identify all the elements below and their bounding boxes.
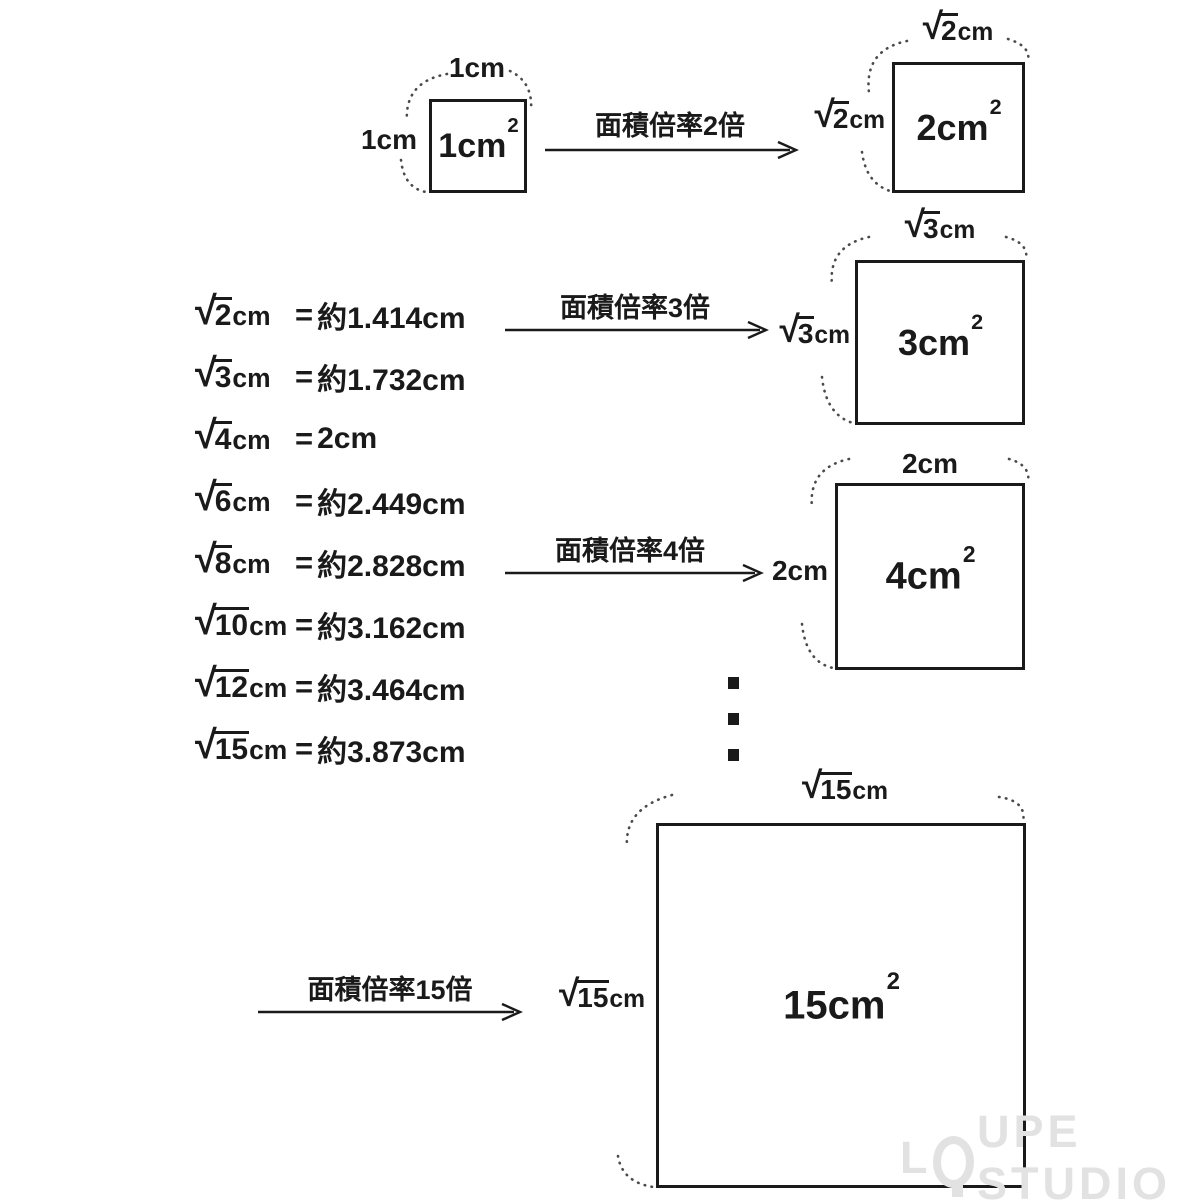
loupe-studio-watermark: L UPE STUDIO (900, 1106, 1200, 1200)
list-item-sqrt6: √6cm =約2.449cm (195, 478, 466, 524)
square-3cm2: 3cm2 (855, 260, 1025, 425)
area-label-15cm2: 15cm2 (783, 983, 899, 1028)
arrow-label-x2: 面積倍率2倍 (570, 104, 770, 143)
dim-left-2cm: 2cm (758, 555, 828, 587)
list-item-sqrt8: √8cm =約2.828cm (195, 540, 466, 586)
arc (862, 152, 890, 191)
arc (822, 377, 853, 423)
arc (999, 797, 1024, 822)
list-item-sqrt12: √12cm =約3.464cm (195, 664, 466, 710)
arc (401, 160, 426, 192)
ellipsis-dot (728, 749, 739, 761)
ellipsis-dot (728, 713, 739, 725)
arrow-label-x15: 面積倍率15倍 (280, 968, 500, 1007)
arc (1009, 459, 1028, 483)
arc (1006, 237, 1026, 260)
square-1cm2: 1cm2 (429, 99, 527, 193)
dim-left-1cm: 1cm (335, 124, 417, 156)
ellipsis-dot (728, 677, 739, 689)
square-2cm2: 2cm2 (892, 62, 1025, 193)
dim-left-sqrt2cm: √2cm (790, 101, 885, 135)
area-label-2cm2: 2cm2 (916, 107, 1000, 149)
list-item-sqrt4: √4cm =2cm (195, 416, 377, 462)
dim-top-2cm: 2cm (880, 448, 980, 480)
dim-top-sqrt2cm: √2cm (903, 13, 1013, 47)
list-item-sqrt15: √15cm =約3.873cm (195, 726, 466, 772)
diagram-canvas: 1cm2 1cm 1cm 面積倍率2倍 2cm2 √2cm √2cm √2cm … (0, 0, 1200, 1200)
arrow-label-x4: 面積倍率4倍 (530, 529, 730, 568)
area-label-3cm2: 3cm2 (898, 322, 982, 364)
arc (802, 624, 833, 668)
dim-left-sqrt3cm: √3cm (760, 316, 850, 350)
arc (618, 1156, 653, 1187)
dim-top-sqrt3cm: √3cm (885, 211, 995, 245)
square-4cm2: 4cm2 (835, 483, 1025, 670)
watermark-text-prefix: L (900, 1132, 932, 1184)
dim-left-sqrt15cm: √15cm (545, 980, 645, 1014)
watermark-text-suffix: UPE STUDIO (977, 1106, 1200, 1200)
list-item-sqrt2: √2cm =約1.414cm (195, 292, 466, 338)
dim-top-1cm: 1cm (427, 52, 527, 84)
list-item-sqrt3: √3cm =約1.732cm (195, 354, 466, 400)
list-item-sqrt10: √10cm =約3.162cm (195, 602, 466, 648)
area-label-1cm2: 1cm2 (438, 127, 517, 166)
dim-top-sqrt15cm: √15cm (785, 772, 905, 806)
arrow-label-x3: 面積倍率3倍 (535, 286, 735, 325)
area-label-4cm2: 4cm2 (886, 554, 975, 599)
magnifier-icon (933, 1136, 974, 1188)
